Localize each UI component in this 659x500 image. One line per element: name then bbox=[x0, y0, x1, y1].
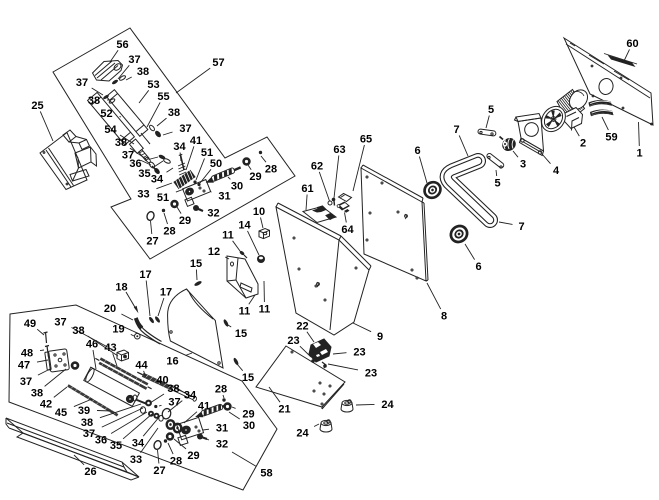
svg-text:37: 37 bbox=[54, 317, 66, 329]
svg-text:24: 24 bbox=[296, 428, 309, 440]
svg-text:50: 50 bbox=[210, 158, 222, 170]
svg-text:29: 29 bbox=[179, 215, 191, 227]
svg-text:24: 24 bbox=[381, 399, 394, 411]
svg-text:17: 17 bbox=[160, 287, 172, 299]
svg-text:6: 6 bbox=[414, 145, 420, 157]
svg-text:41: 41 bbox=[190, 135, 202, 147]
svg-text:34: 34 bbox=[132, 438, 145, 450]
svg-text:20: 20 bbox=[104, 303, 116, 315]
svg-text:29: 29 bbox=[187, 450, 199, 462]
svg-text:36: 36 bbox=[95, 435, 107, 447]
svg-text:27: 27 bbox=[153, 465, 165, 477]
svg-text:35: 35 bbox=[138, 168, 150, 180]
svg-text:52: 52 bbox=[100, 108, 112, 120]
svg-text:37: 37 bbox=[20, 376, 32, 388]
svg-text:37: 37 bbox=[179, 123, 191, 135]
svg-text:11: 11 bbox=[222, 230, 234, 242]
svg-text:29: 29 bbox=[242, 409, 254, 421]
svg-text:38: 38 bbox=[81, 417, 93, 429]
svg-text:61: 61 bbox=[301, 183, 313, 195]
svg-text:1: 1 bbox=[636, 148, 642, 160]
svg-text:30: 30 bbox=[231, 181, 243, 193]
svg-text:7: 7 bbox=[453, 124, 459, 136]
svg-text:38: 38 bbox=[72, 325, 84, 337]
svg-text:5: 5 bbox=[494, 178, 500, 190]
svg-text:48: 48 bbox=[21, 348, 33, 360]
svg-text:51: 51 bbox=[157, 192, 169, 204]
svg-text:19: 19 bbox=[112, 324, 124, 336]
svg-text:41: 41 bbox=[198, 401, 210, 413]
svg-text:34: 34 bbox=[173, 141, 186, 153]
svg-text:28: 28 bbox=[265, 164, 277, 176]
svg-text:5: 5 bbox=[488, 104, 494, 116]
svg-text:2: 2 bbox=[580, 138, 586, 150]
svg-text:38: 38 bbox=[167, 383, 179, 395]
svg-text:21: 21 bbox=[278, 404, 290, 416]
svg-text:47: 47 bbox=[18, 360, 30, 372]
svg-text:26: 26 bbox=[84, 466, 96, 478]
svg-text:59: 59 bbox=[605, 132, 617, 144]
svg-text:4: 4 bbox=[553, 165, 560, 177]
svg-text:33: 33 bbox=[130, 454, 142, 466]
svg-text:23: 23 bbox=[353, 347, 365, 359]
svg-text:55: 55 bbox=[157, 91, 169, 103]
svg-text:38: 38 bbox=[31, 388, 43, 400]
svg-text:28: 28 bbox=[163, 226, 175, 238]
svg-text:54: 54 bbox=[104, 124, 117, 136]
svg-text:38: 38 bbox=[88, 95, 100, 107]
svg-text:28: 28 bbox=[170, 456, 182, 468]
svg-text:9: 9 bbox=[377, 331, 383, 343]
svg-text:57: 57 bbox=[212, 57, 224, 69]
svg-text:33: 33 bbox=[137, 189, 149, 201]
svg-text:42: 42 bbox=[40, 399, 52, 411]
svg-text:32: 32 bbox=[216, 439, 228, 451]
svg-text:23: 23 bbox=[365, 368, 377, 380]
svg-text:15: 15 bbox=[190, 258, 202, 270]
svg-text:60: 60 bbox=[626, 38, 638, 50]
svg-text:15: 15 bbox=[235, 328, 247, 340]
svg-text:64: 64 bbox=[341, 224, 354, 236]
svg-text:35: 35 bbox=[110, 440, 122, 452]
svg-text:23: 23 bbox=[287, 335, 299, 347]
svg-text:38: 38 bbox=[168, 107, 180, 119]
svg-text:56: 56 bbox=[116, 39, 128, 51]
svg-text:7: 7 bbox=[518, 221, 524, 233]
svg-text:11: 11 bbox=[259, 304, 271, 316]
svg-text:45: 45 bbox=[55, 407, 67, 419]
svg-text:31: 31 bbox=[218, 191, 230, 203]
svg-text:65: 65 bbox=[360, 134, 372, 146]
svg-text:16: 16 bbox=[166, 356, 178, 368]
svg-text:8: 8 bbox=[441, 311, 447, 323]
svg-text:49: 49 bbox=[24, 318, 36, 330]
svg-text:17: 17 bbox=[139, 269, 151, 281]
svg-text:27: 27 bbox=[146, 236, 158, 248]
svg-text:28: 28 bbox=[215, 384, 227, 396]
svg-text:37: 37 bbox=[76, 77, 88, 89]
svg-text:10: 10 bbox=[253, 206, 265, 218]
svg-text:6: 6 bbox=[475, 261, 481, 273]
svg-text:38: 38 bbox=[137, 66, 149, 78]
svg-text:62: 62 bbox=[311, 161, 323, 173]
svg-text:44: 44 bbox=[135, 360, 148, 372]
svg-text:12: 12 bbox=[208, 246, 220, 258]
svg-text:38: 38 bbox=[115, 137, 127, 149]
svg-text:58: 58 bbox=[260, 468, 272, 480]
svg-text:32: 32 bbox=[207, 208, 219, 220]
svg-text:63: 63 bbox=[333, 144, 345, 156]
svg-text:15: 15 bbox=[242, 372, 254, 384]
svg-text:39: 39 bbox=[78, 405, 90, 417]
svg-text:30: 30 bbox=[243, 420, 255, 432]
svg-text:3: 3 bbox=[520, 159, 526, 171]
svg-text:18: 18 bbox=[115, 282, 127, 294]
svg-text:29: 29 bbox=[249, 171, 261, 183]
svg-text:37: 37 bbox=[83, 428, 95, 440]
svg-text:53: 53 bbox=[147, 79, 159, 91]
svg-text:22: 22 bbox=[296, 321, 308, 333]
svg-text:31: 31 bbox=[216, 423, 228, 435]
svg-text:25: 25 bbox=[31, 100, 43, 112]
svg-text:37: 37 bbox=[128, 54, 140, 66]
svg-text:11: 11 bbox=[239, 306, 251, 318]
svg-text:34: 34 bbox=[184, 390, 197, 402]
svg-text:34: 34 bbox=[151, 173, 164, 185]
svg-text:14: 14 bbox=[238, 220, 251, 232]
